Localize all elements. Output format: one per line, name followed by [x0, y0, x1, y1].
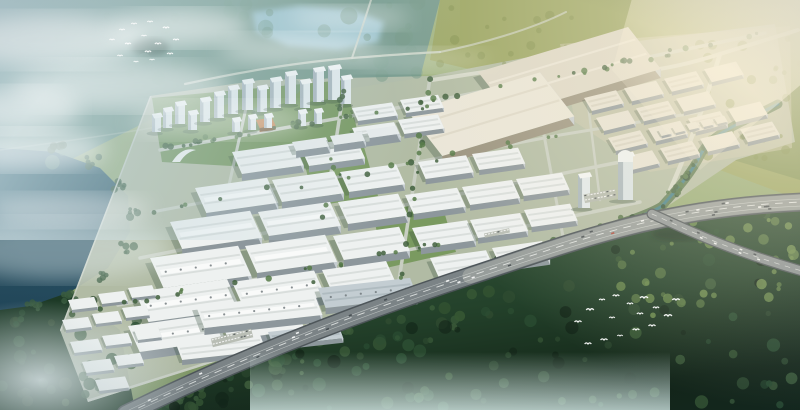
industrial-park-rendering: Aerial rendering of an industrial park m… — [0, 0, 800, 410]
vignette — [0, 0, 800, 410]
aerial-rendering-canvas: Aerial rendering of an industrial park m… — [0, 0, 800, 410]
